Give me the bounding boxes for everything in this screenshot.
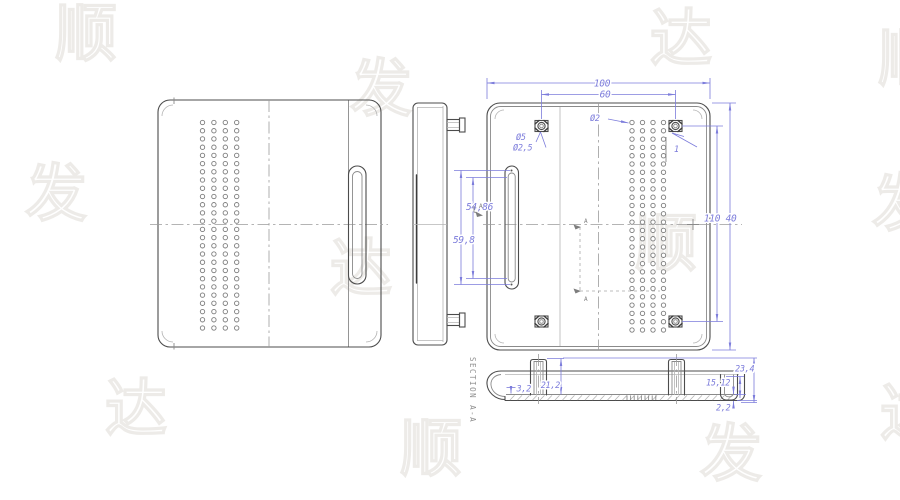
- technical-drawing: 顺发达顺发达顺发达顺发达: [0, 0, 900, 500]
- watermark-glyph: 顺: [55, 0, 117, 70]
- watermark-glyph: 顺: [400, 412, 462, 485]
- side-view: [413, 103, 465, 345]
- watermark-glyph: 发: [700, 417, 762, 490]
- back-handle-slot: [505, 166, 519, 289]
- watermark-glyph: 达: [880, 377, 900, 450]
- front-vent-holes: [200, 120, 239, 330]
- section-ribs: [531, 354, 685, 404]
- dim-chamfer: 1: [674, 145, 679, 155]
- dim-cavity-height: 15,12: [706, 379, 730, 389]
- watermark-glyph: 发: [25, 157, 87, 230]
- section-hatch: [510, 395, 732, 400]
- section-arrow-label-3: A: [479, 203, 483, 210]
- dim-bottom-wall: 2,2: [716, 404, 731, 414]
- dim-overall-width: 100: [594, 79, 611, 90]
- watermark-glyph: 达: [650, 2, 712, 75]
- side-tab-bottom: [447, 313, 465, 327]
- dim-overall-height: 110: [704, 214, 721, 225]
- watermark-glyph: 顺: [878, 22, 900, 95]
- dim-boss-offset: 40: [726, 214, 737, 225]
- dim-vent-hole-dia: Ø2: [590, 113, 600, 124]
- dim-hook-gap: 3,2: [516, 385, 532, 395]
- watermark-glyph: 顺: [635, 207, 697, 280]
- watermark-glyph: 发: [872, 167, 900, 240]
- watermark-glyph: 达: [330, 232, 392, 305]
- section-label: SECTION A-A: [468, 357, 477, 423]
- dimension-layer: 100 60 110 40 54,86 59,8 Ø5 Ø2,5 Ø2 1 A …: [453, 78, 757, 414]
- section-arrow-label-2: A: [584, 296, 588, 303]
- dim-slot-outer: 59,8: [453, 235, 475, 246]
- dim-boss-dia: Ø5: [516, 132, 526, 143]
- section-arrow-label-1: A: [584, 218, 588, 225]
- cad-drawing-canvas: 顺发达顺发达顺发达顺发达: [0, 0, 900, 500]
- dim-total-height: 23,4: [735, 365, 754, 375]
- section-hook: [487, 371, 505, 400]
- dim-rib-height: 21,2: [541, 381, 560, 391]
- dim-boss-spacing: 60: [600, 90, 611, 101]
- watermark-glyph: 达: [105, 372, 167, 445]
- front-view: [150, 98, 388, 350]
- dim-boss-hole-dia: Ø2,5: [513, 143, 532, 154]
- section-view: SECTION A-A: [468, 354, 745, 423]
- side-tab-top: [447, 118, 465, 132]
